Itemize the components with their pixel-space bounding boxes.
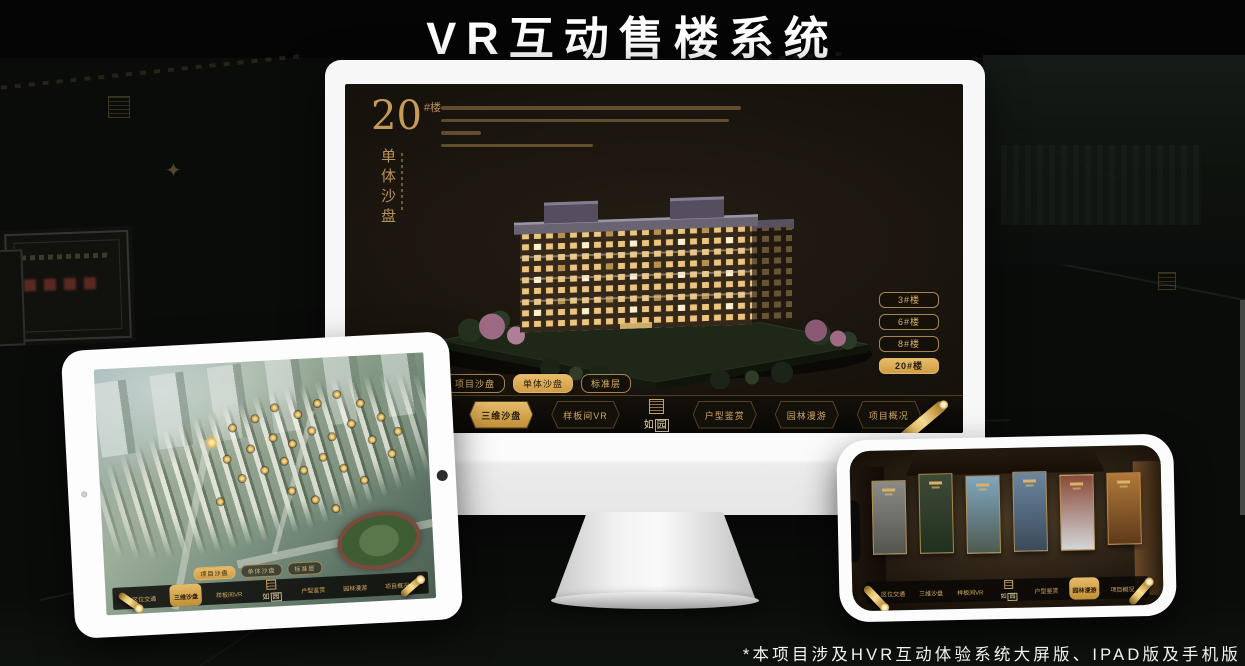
gallery-panel-4[interactable] (1012, 471, 1048, 552)
brand-seal-logo: 如园 (644, 399, 669, 431)
nav-item-5[interactable]: 园林漫游 (339, 574, 372, 598)
nav-item-label: 项目概况 (1110, 587, 1134, 594)
brand-seal-logo: 如园 (1000, 580, 1017, 600)
background-photo (983, 55, 1245, 265)
gold-seal-icon (1158, 272, 1176, 290)
phone-notch (850, 500, 860, 562)
nav-item-label: 园林漫游 (343, 586, 367, 593)
nav-item-label: 样板间VR (563, 411, 608, 421)
nav-item-label: 样板间VR (957, 590, 983, 597)
building-badge[interactable] (269, 434, 276, 441)
nav-item-label: 园林漫游 (787, 411, 827, 421)
gallery-panel-3[interactable] (965, 475, 1001, 554)
subtab-group: 项目沙盘单体沙盘标准层 (445, 374, 631, 393)
monitor-stand (555, 512, 755, 598)
nav-item-label: 项目概况 (385, 583, 409, 590)
nav-item-label: 三维沙盘 (481, 411, 521, 421)
floor-button-8#楼[interactable]: 8#楼 (879, 336, 939, 352)
page-title: VR互动售楼系统 (0, 2, 1245, 67)
subtab-3[interactable]: 标准层 (287, 561, 323, 576)
nav-item-label: 三维沙盘 (919, 591, 943, 598)
nav-item-3[interactable]: 样板间VR (954, 579, 987, 602)
nav-item-6[interactable]: 项目概况 (381, 572, 414, 596)
floor-button-6#楼[interactable]: 6#楼 (879, 314, 939, 330)
background-highlight (1240, 300, 1245, 515)
building-badge[interactable] (360, 476, 367, 483)
building-badge[interactable] (368, 436, 375, 443)
section-title-vertical: 单体沙盘 (377, 148, 398, 228)
gold-seal-icon (108, 96, 130, 118)
background-plaque-small (0, 249, 26, 346)
brand-name: 如园 (644, 416, 669, 431)
main-navbar: 区位交通三维沙盘样板间VR如园户型鉴赏园林漫游项目概况 (866, 576, 1149, 604)
subtab-1[interactable]: 项目沙盘 (193, 566, 236, 581)
nav-item-label: 三维沙盘 (174, 595, 198, 602)
gallery-panel-2[interactable] (918, 473, 954, 554)
building-badge[interactable] (313, 400, 320, 407)
building-badge[interactable] (246, 445, 253, 452)
nav-item-3[interactable]: 样板间VR (211, 581, 246, 605)
phone-screen: 区位交通三维沙盘样板间VR如园户型鉴赏园林漫游项目概况 (849, 445, 1163, 611)
building-badge[interactable] (394, 427, 401, 434)
brand-name: 如园 (1000, 591, 1017, 600)
gallery-panels (871, 469, 1142, 556)
tablet-mockup: 项目沙盘单体沙盘标准层 区位交通三维沙盘样板间VR如园户型鉴赏园林漫游项目概况 (61, 331, 464, 639)
gallery-panel-6[interactable] (1106, 472, 1142, 545)
nav-item-2[interactable]: 三维沙盘 (469, 401, 533, 429)
nav-item-2[interactable]: 三维沙盘 (916, 580, 946, 603)
nav-item-1[interactable]: 区位交通 (127, 586, 160, 610)
nav-item-5[interactable]: 园林漫游 (775, 401, 839, 429)
nav-item-label: 区位交通 (132, 597, 156, 604)
seal-icon (1004, 580, 1013, 589)
building-heading: 20#楼 (371, 96, 441, 136)
tablet-screen: 项目沙盘单体沙盘标准层 区位交通三维沙盘样板间VR如园户型鉴赏园林漫游项目概况 (94, 352, 436, 615)
building-badge[interactable] (332, 505, 339, 512)
nav-item-label: 户型鉴赏 (1034, 589, 1058, 596)
nav-item-label: 项目概况 (869, 411, 909, 421)
building-badge[interactable] (229, 424, 236, 431)
monitor-base (551, 592, 759, 609)
poster-canvas: ✦ VR互动售楼系统 20#楼 单体沙盘 (0, 0, 1245, 666)
seal-icon (649, 399, 664, 414)
nav-item-5[interactable]: 园林漫游 (1069, 577, 1099, 600)
floor-button-20#楼[interactable]: 20#楼 (879, 358, 939, 374)
subtab-2[interactable]: 单体沙盘 (513, 374, 573, 393)
building-badge[interactable] (238, 475, 245, 482)
building-number: 20 (371, 93, 422, 139)
subtab-2[interactable]: 单体沙盘 (240, 563, 283, 578)
nav-item-4[interactable]: 户型鉴赏 (693, 401, 757, 429)
building-suffix: #楼 (424, 102, 441, 114)
footnote: *本项目涉及HVR互动体验系统大屏版、IPAD版及手机版 (743, 641, 1241, 665)
tablet-home-button[interactable] (436, 470, 448, 482)
brand-seal-logo: 如园 (262, 579, 282, 602)
nav-item-3[interactable]: 样板间VR (551, 401, 620, 429)
nav-item-6[interactable]: 项目概况 (1107, 576, 1137, 599)
phone-mockup: 区位交通三维沙盘样板间VR如园户型鉴赏园林漫游项目概况 (836, 433, 1177, 622)
floor-button-3#楼[interactable]: 3#楼 (879, 292, 939, 308)
nav-item-label: 样板间VR (216, 592, 243, 599)
nav-item-1[interactable]: 区位交通 (878, 581, 908, 604)
subtab-3[interactable]: 标准层 (581, 374, 631, 393)
building-badge[interactable] (261, 466, 268, 473)
nav-item-4[interactable]: 户型鉴赏 (1031, 578, 1061, 601)
nav-item-label: 区位交通 (881, 592, 905, 599)
seal-icon (266, 579, 277, 590)
building-badge[interactable] (348, 420, 355, 427)
nav-item-label: 园林漫游 (1072, 588, 1096, 595)
building-3d-render[interactable] (400, 144, 905, 389)
nav-item-label: 户型鉴赏 (301, 588, 325, 595)
compass-icon: ✦ (165, 158, 182, 183)
nav-item-label: 户型鉴赏 (705, 411, 745, 421)
nav-item-4[interactable]: 户型鉴赏 (297, 577, 330, 601)
brand-name: 如园 (262, 591, 281, 602)
floor-button-group: 3#楼6#楼8#楼20#楼 (879, 292, 939, 374)
building-badge[interactable] (377, 414, 384, 421)
building-badge[interactable] (294, 411, 301, 418)
building-badge[interactable] (206, 437, 217, 448)
nav-item-2[interactable]: 三维沙盘 (169, 583, 202, 607)
subtab-1[interactable]: 项目沙盘 (445, 374, 505, 393)
gallery-panel-5[interactable] (1059, 474, 1095, 551)
tablet-camera (81, 491, 87, 497)
gallery-panel-1[interactable] (871, 480, 907, 555)
